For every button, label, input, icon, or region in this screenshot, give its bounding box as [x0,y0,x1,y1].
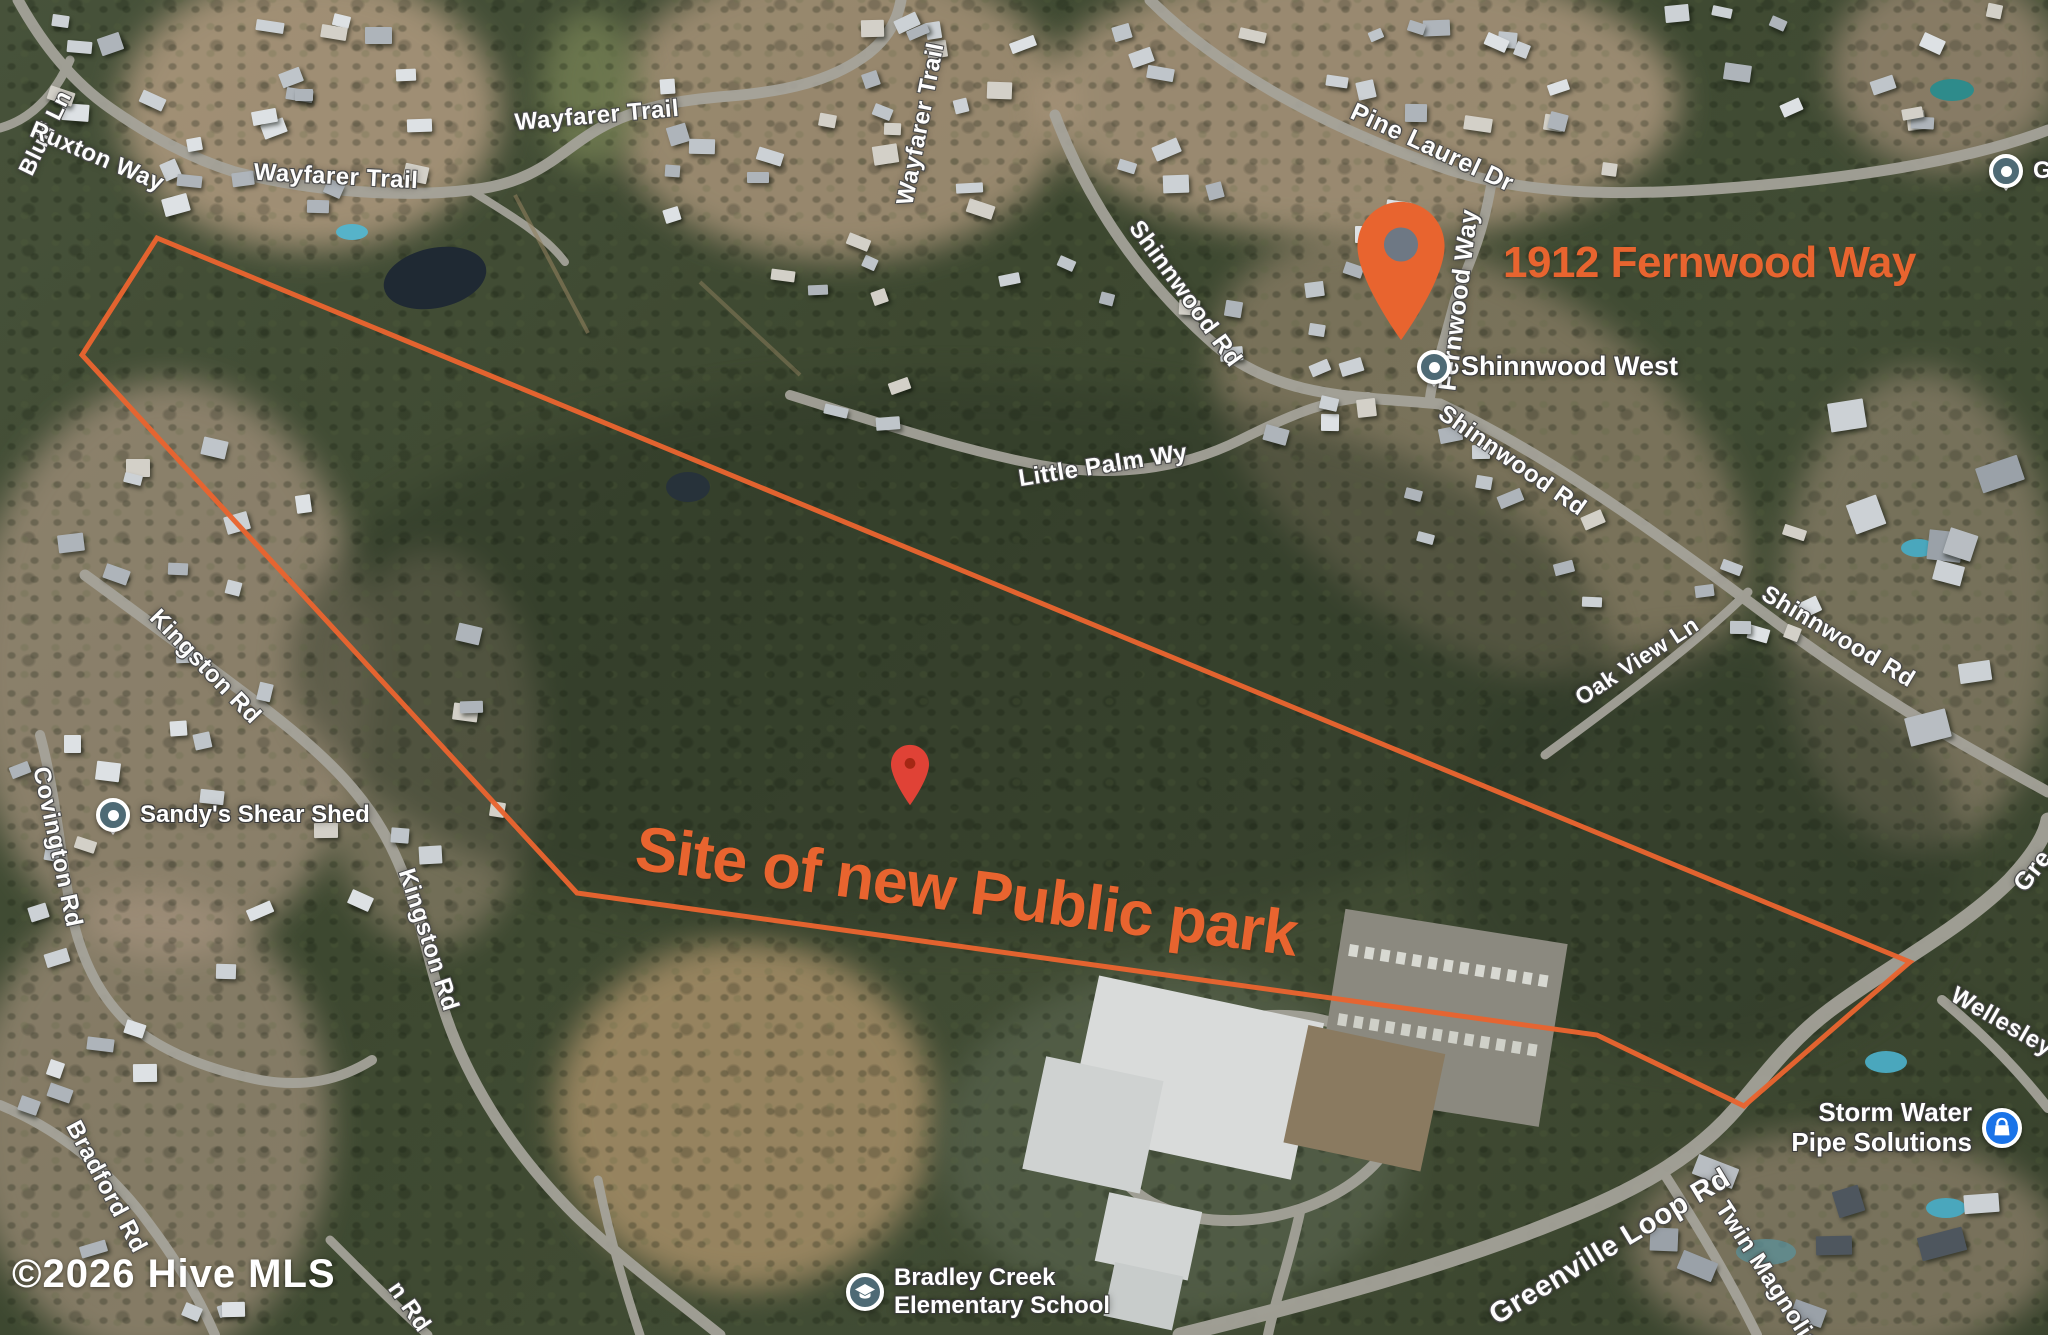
house [807,285,827,296]
bag-icon [1982,1108,2022,1148]
house [489,801,506,818]
house [365,27,392,44]
house [1769,15,1788,32]
house [1304,281,1324,298]
house [1321,413,1339,430]
house [1664,4,1689,23]
house [168,562,189,575]
poi-label-line: Pipe Solutions [1791,1128,1972,1158]
house [1423,20,1451,37]
house [1356,398,1377,418]
house [659,78,675,94]
poi-label-line: Bradley Creek [894,1264,1110,1292]
house [295,494,312,514]
road-label-gre: Gre [2008,845,2048,898]
house [1582,597,1602,608]
house [1964,1193,2001,1214]
house [418,846,442,866]
house [1099,291,1116,306]
house [97,32,125,57]
address-annotation-text: 1912 Fernwood Way [1503,238,1916,288]
house [176,174,202,188]
house [664,164,680,177]
house [884,123,902,136]
house [396,69,417,81]
house [1779,97,1804,118]
circle-pin-icon [96,798,130,832]
clearing-patch [540,10,640,170]
house [1816,1236,1853,1256]
poi-label-shinnwood-west: Shinnwood West [1461,351,1678,382]
poi-label-line: G [2033,157,2048,185]
house [51,14,69,28]
house [1985,2,2002,18]
house [1308,322,1326,336]
house [956,182,984,194]
school-icon [846,1273,884,1311]
house [406,119,431,133]
poi-label-storm-water-pipe-solutions: Storm WaterPipe Solutions [1791,1098,1972,1158]
house [747,171,769,182]
road-label-wellesley-p: Wellesley P [1946,982,2048,1075]
house [1163,174,1190,193]
poi-label-sandys-shear-shed: Sandy's Shear Shed [140,801,370,829]
suburb-patch [1630,1130,2048,1335]
house [1475,475,1493,490]
house [998,272,1021,287]
house [771,269,797,283]
house [818,112,837,128]
house [222,1302,246,1317]
poi-label-line: Elementary School [894,1292,1110,1320]
house [57,533,85,554]
house [1730,621,1752,634]
satellite-map-image[interactable]: Bluff LnRuxton WayWayfarer TrailWayfarer… [0,0,2048,1335]
house [662,206,681,224]
house [64,735,81,753]
house [1711,5,1732,19]
house [1723,62,1752,82]
house [169,720,187,737]
pond [378,238,492,318]
house [95,761,121,783]
house [231,170,255,186]
suburb-patch [1830,0,2048,170]
house [295,89,313,101]
house [1405,104,1427,122]
house [871,143,898,165]
poi-label-line: Storm Water [1791,1098,1972,1128]
house [459,701,483,714]
house [28,902,51,922]
small-red-pin-icon [886,744,934,806]
poi-label-bradley-creek-elementary-school: Bradley CreekElementary School [894,1264,1110,1319]
road-label-n-rd: n Rd [382,1276,437,1335]
house [689,139,715,154]
poi-label-line: Shinnwood West [1461,351,1678,382]
poi-label-unlabeled-poi: G [2033,157,2048,185]
house [1602,162,1619,177]
house [861,20,884,37]
field-patch [555,940,935,1290]
house [66,40,92,54]
circle-pin-icon [1989,154,2023,188]
house [307,200,330,213]
house [1224,300,1244,319]
house [390,827,409,843]
address-pin-icon [1353,200,1449,342]
house [1694,584,1714,598]
house [133,1064,157,1082]
mls-watermark: ©2026 Hive MLS [12,1252,336,1297]
house [870,288,889,306]
forest-patch [1440,640,1960,1060]
poi-label-line: Sandy's Shear Shed [140,801,370,829]
house [1056,255,1076,272]
house [987,81,1013,99]
circle-pin-icon [1417,350,1451,384]
house [216,963,237,979]
